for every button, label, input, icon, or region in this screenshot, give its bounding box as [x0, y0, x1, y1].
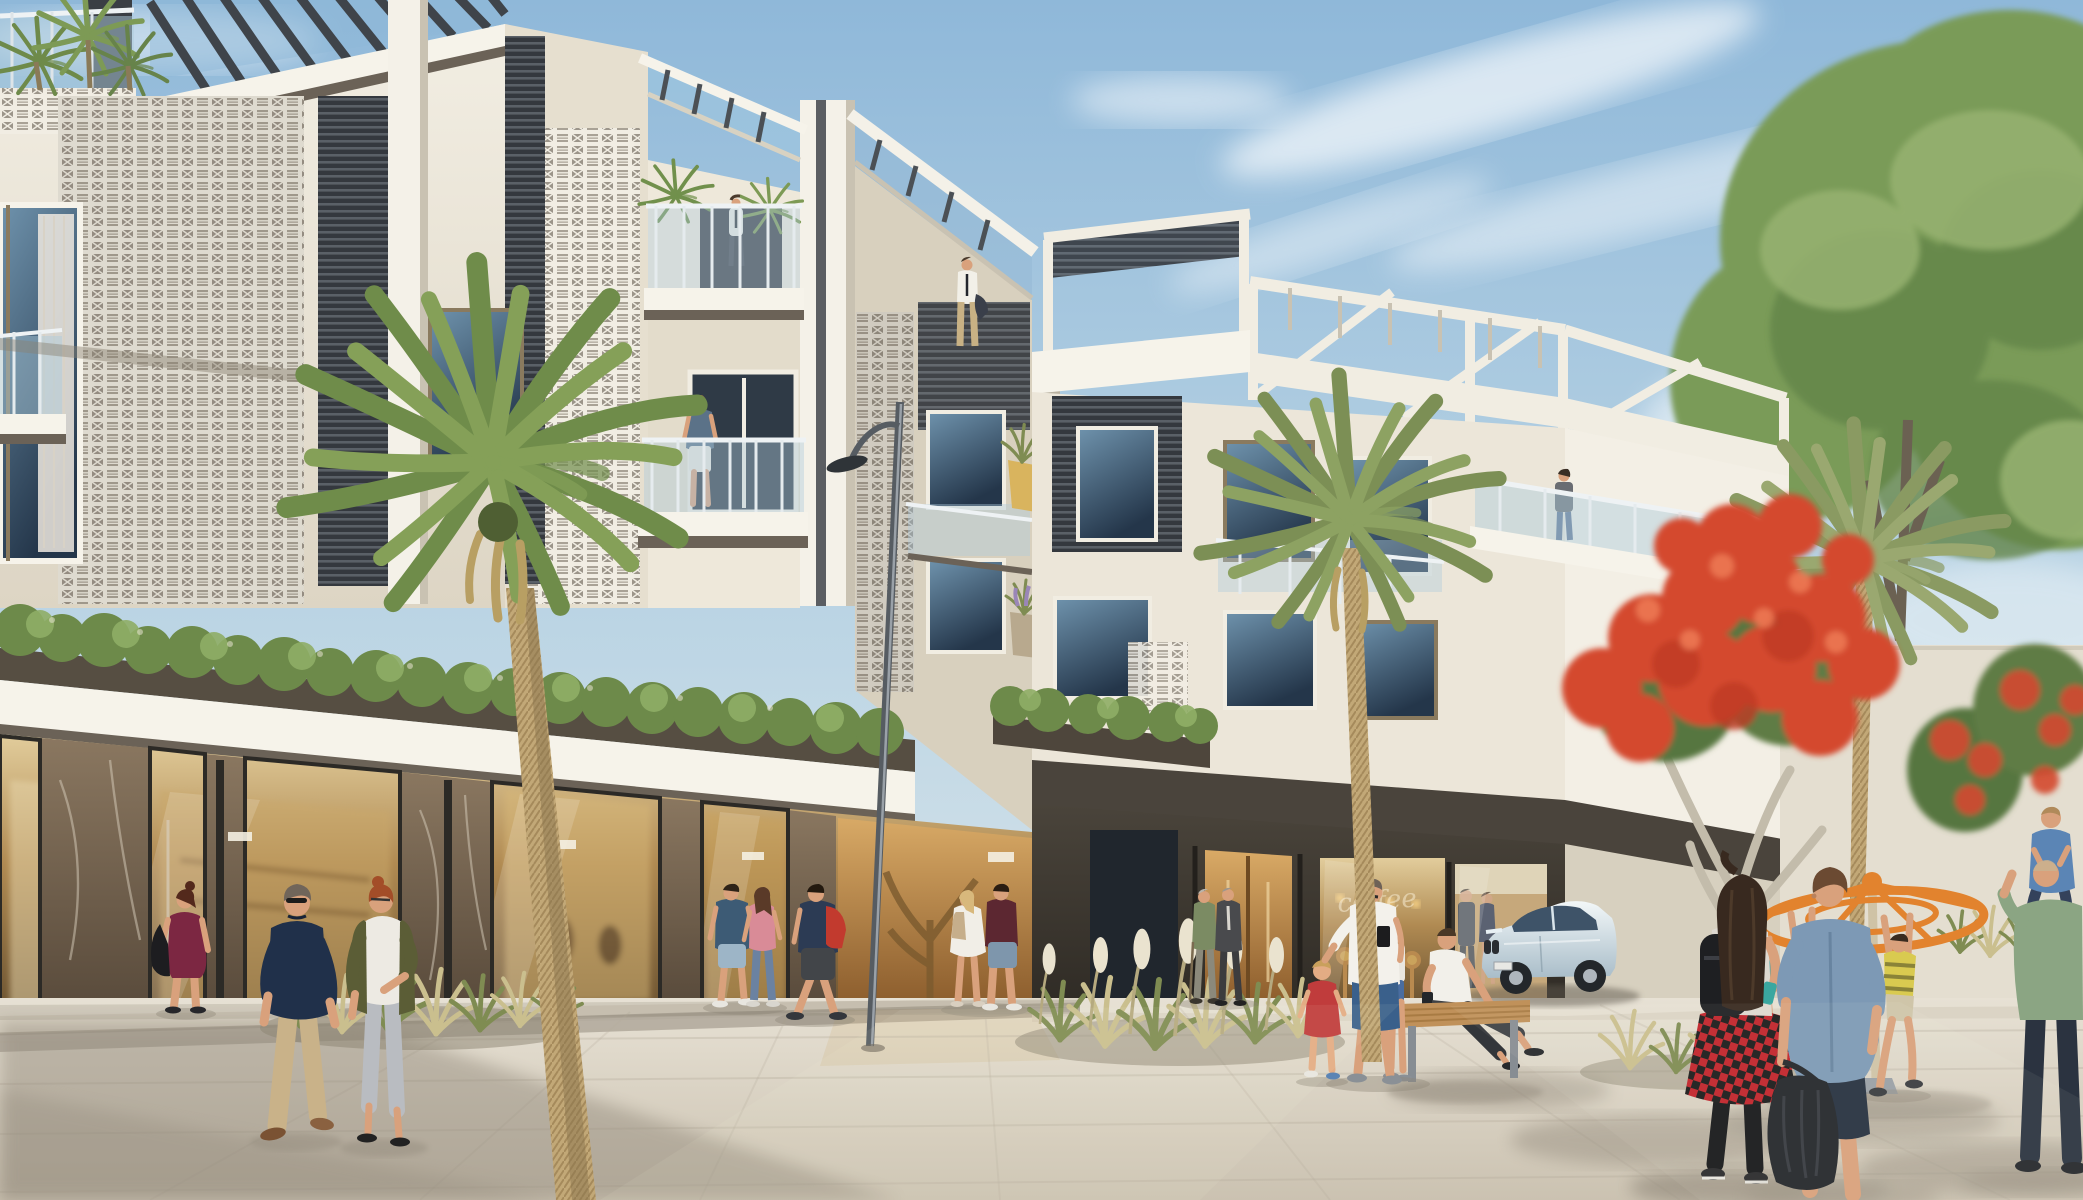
- gap-facade-windows: [906, 412, 1044, 658]
- sunglasses: [286, 898, 307, 903]
- architectural-rendering: coffee: [0, 0, 2083, 1200]
- balcony-with-man: [638, 320, 808, 548]
- beige-backpack: [952, 912, 966, 940]
- license-plate: [1494, 962, 1512, 970]
- car-grille: [1484, 940, 1491, 954]
- car-headlight: [1486, 930, 1502, 932]
- louver-panel: [318, 96, 390, 586]
- long-hair: [1717, 874, 1767, 1011]
